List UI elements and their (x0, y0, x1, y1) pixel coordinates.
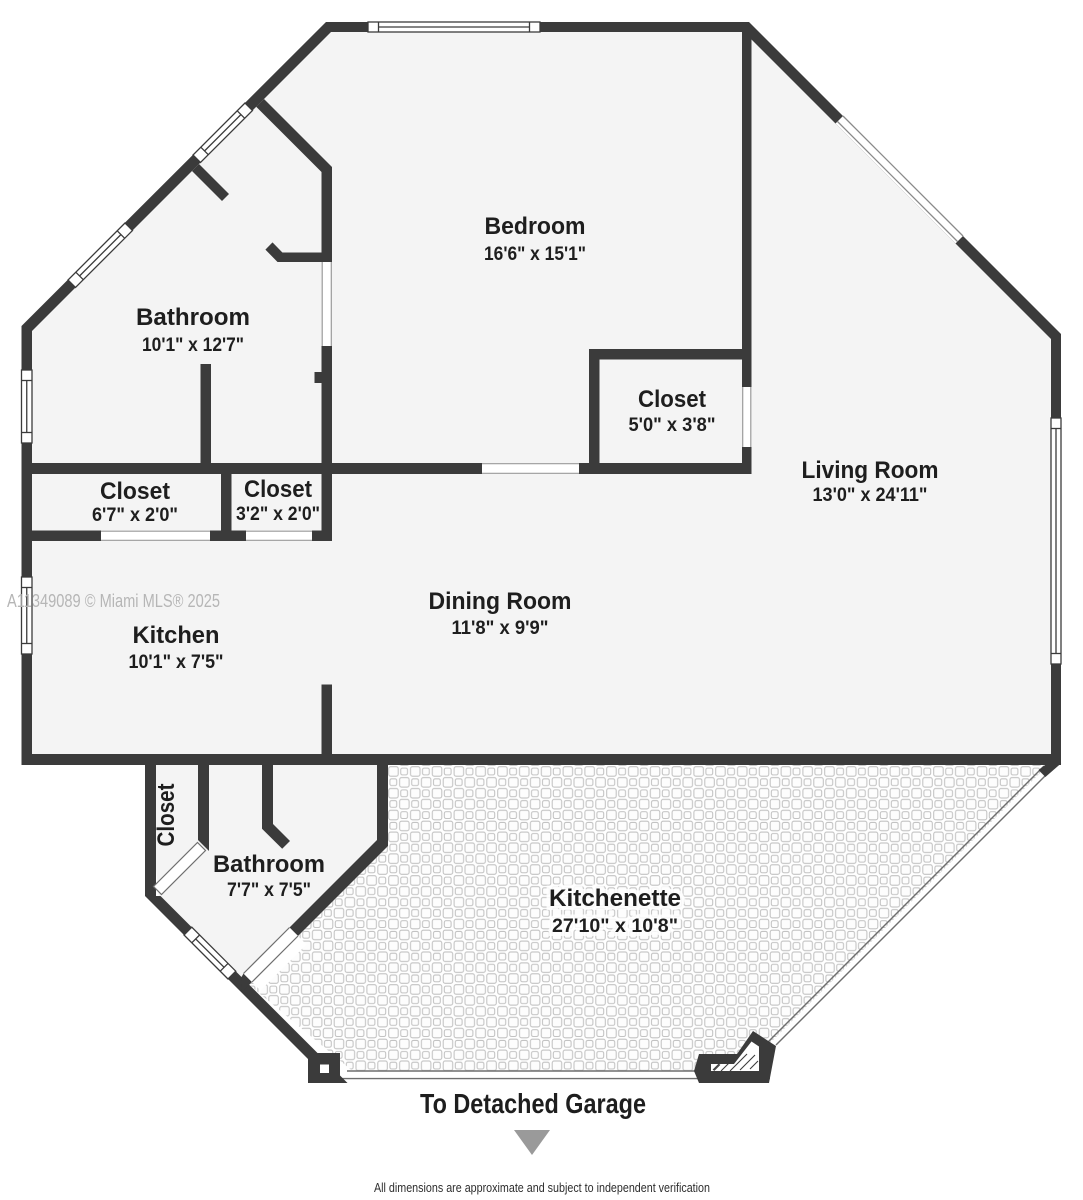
svg-text:A11349089 © Miami MLS® 2025: A11349089 © Miami MLS® 2025 (7, 590, 220, 611)
svg-text:5'0" x 3'8": 5'0" x 3'8" (629, 414, 716, 436)
svg-text:Bathroom: Bathroom (213, 851, 325, 878)
svg-text:10'1" x 12'7": 10'1" x 12'7" (142, 334, 244, 356)
svg-text:16'6" x 15'1": 16'6" x 15'1" (484, 243, 586, 265)
svg-text:6'7" x 2'0": 6'7" x 2'0" (92, 504, 178, 526)
svg-text:Kitchen: Kitchen (133, 622, 220, 649)
svg-text:10'1" x 7'5": 10'1" x 7'5" (129, 651, 224, 673)
svg-text:Bathroom: Bathroom (136, 304, 250, 331)
svg-text:Closet: Closet (100, 478, 170, 505)
svg-text:Bedroom: Bedroom (485, 213, 586, 240)
svg-text:Closet: Closet (153, 784, 180, 847)
svg-text:27'10" x 10'8": 27'10" x 10'8" (552, 915, 678, 937)
svg-text:3'2" x 2'0": 3'2" x 2'0" (236, 503, 320, 525)
svg-text:7'7" x 7'5": 7'7" x 7'5" (227, 879, 311, 901)
svg-text:11'8" x 9'9": 11'8" x 9'9" (452, 617, 549, 639)
svg-text:Living Room: Living Room (802, 457, 939, 484)
svg-text:Closet: Closet (244, 476, 312, 503)
svg-text:To Detached Garage: To Detached Garage (420, 1088, 646, 1119)
svg-text:All dimensions are approximate: All dimensions are approximate and subje… (374, 1181, 710, 1195)
svg-text:Dining Room: Dining Room (429, 588, 572, 615)
svg-text:13'0" x 24'11": 13'0" x 24'11" (813, 484, 928, 506)
svg-text:Closet: Closet (638, 386, 706, 413)
svg-text:Kitchenette: Kitchenette (549, 885, 681, 912)
